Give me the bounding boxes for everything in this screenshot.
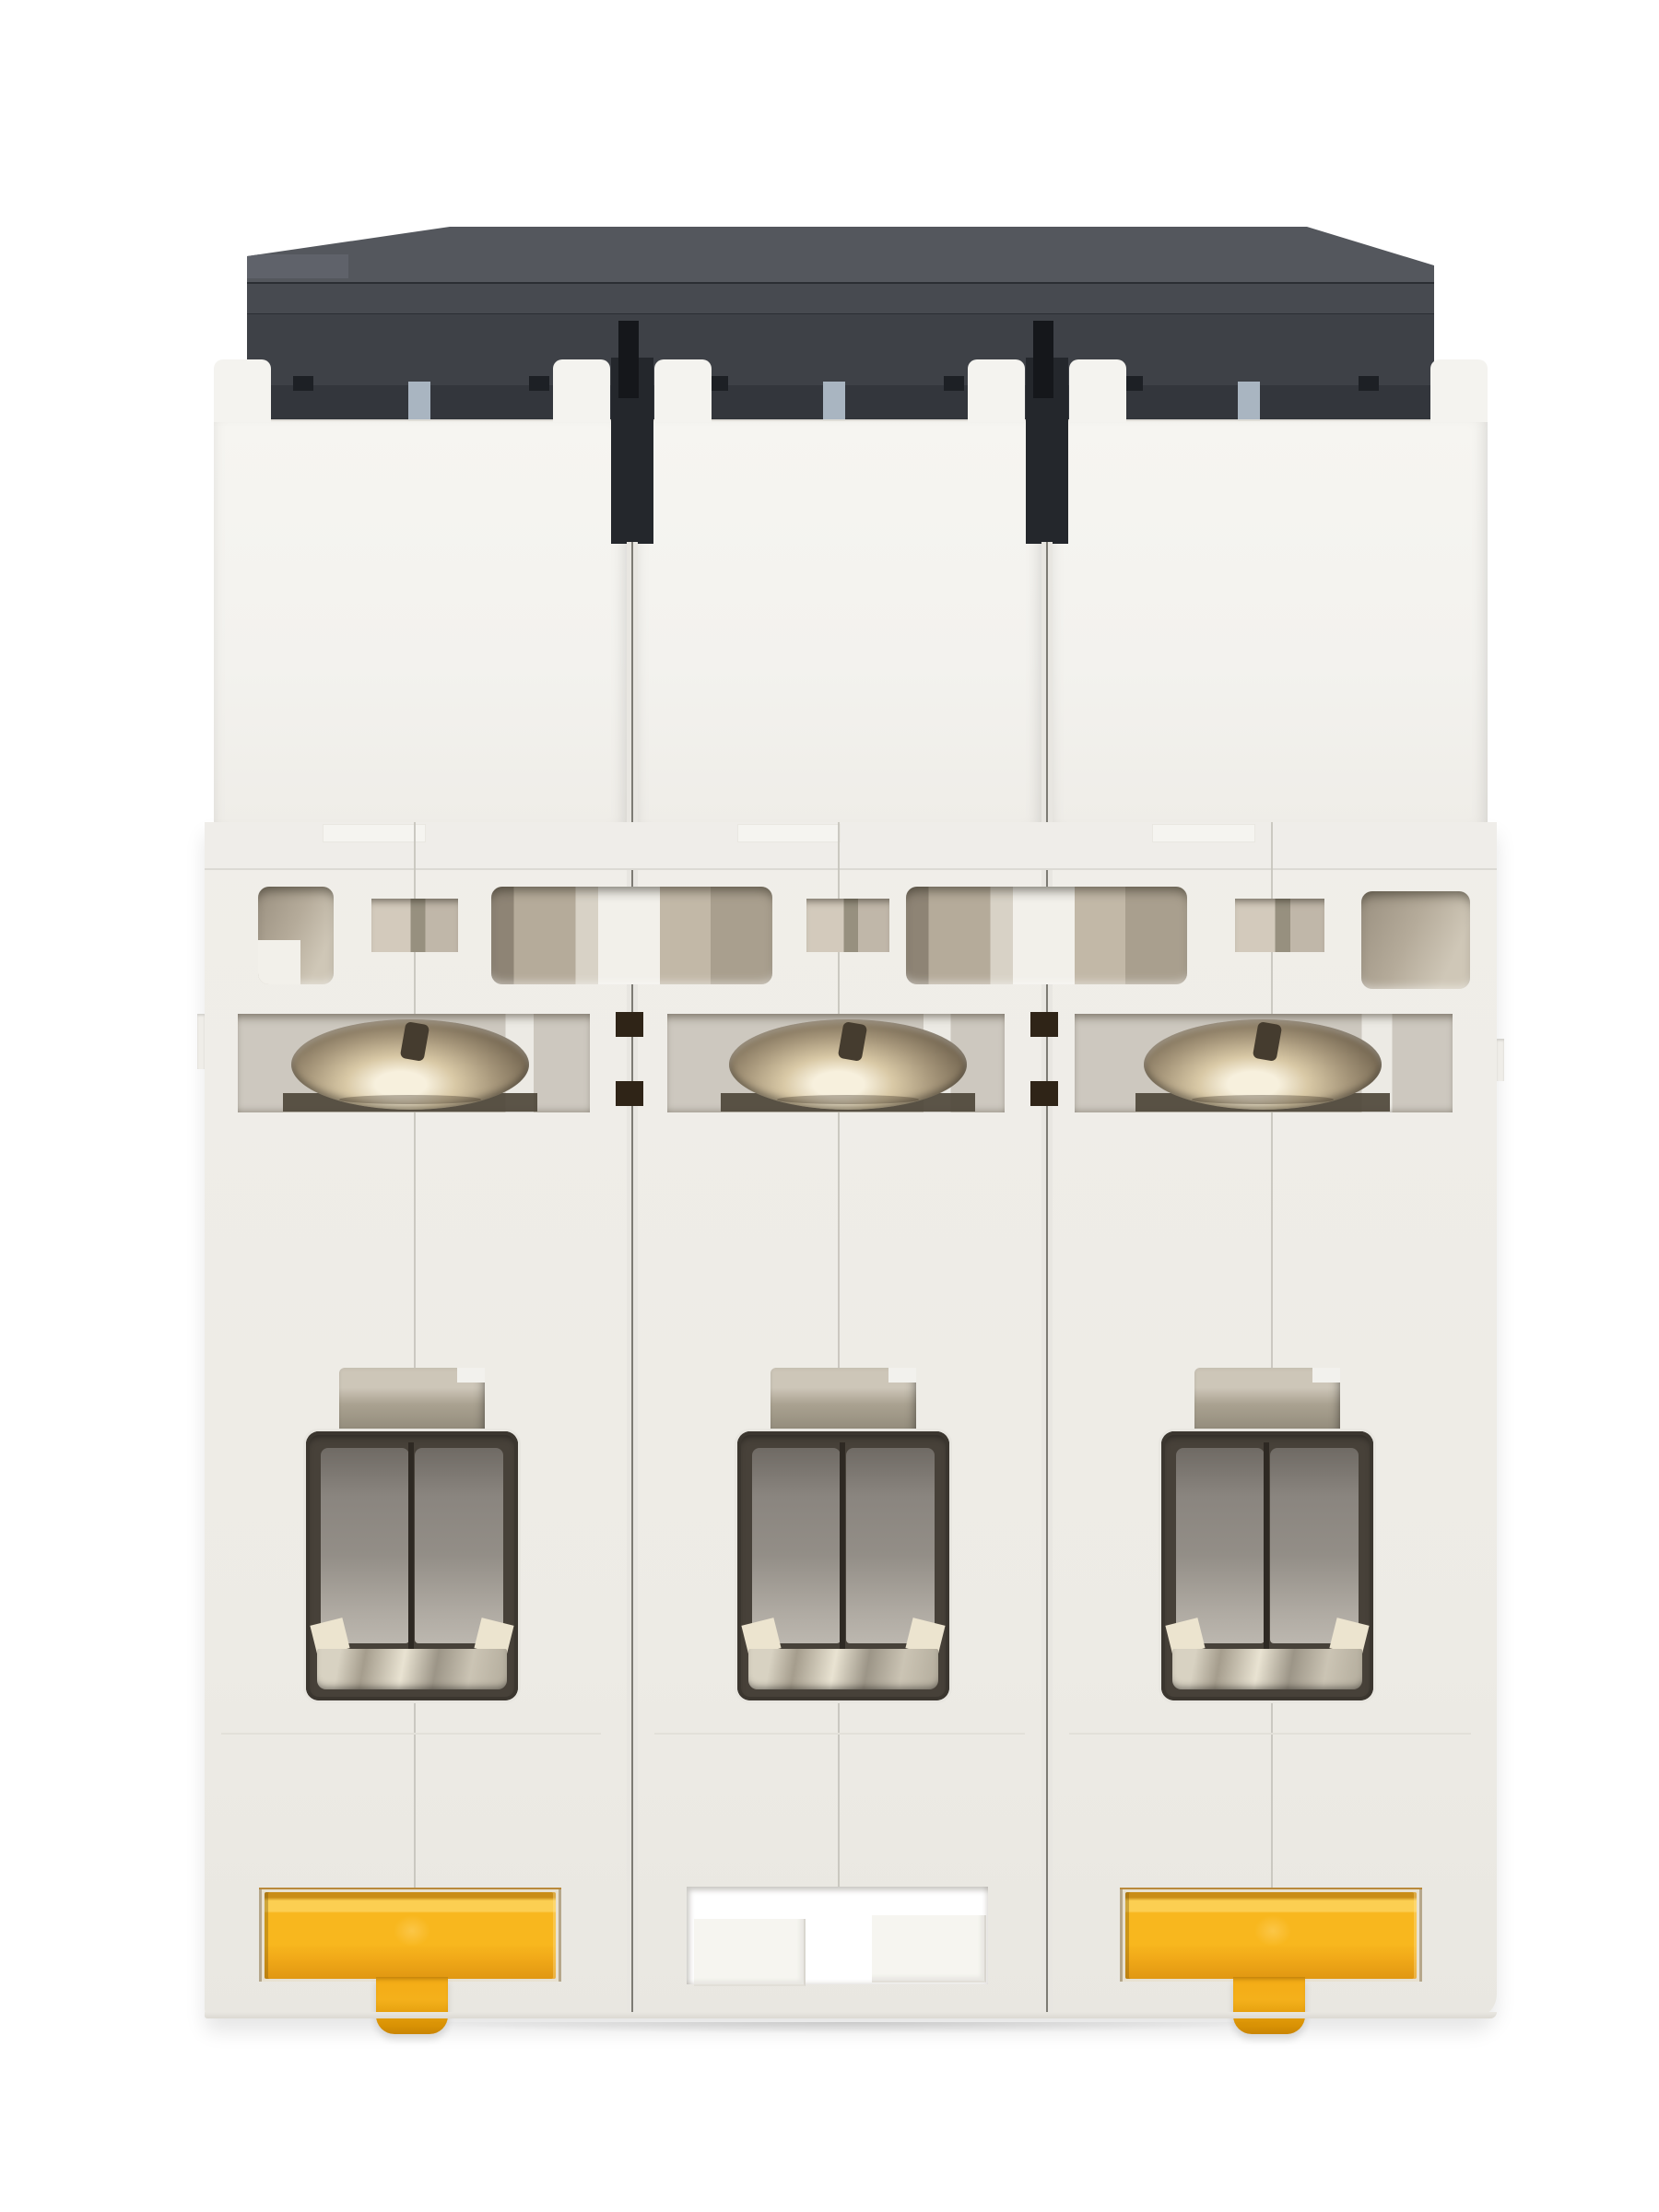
vent-opening-left-edge bbox=[258, 887, 334, 984]
top-cover-left-step-highlight bbox=[247, 254, 348, 278]
pole-gap-latch-2 bbox=[1033, 321, 1053, 398]
din-clip-highlight bbox=[394, 1915, 430, 1947]
vent-opening-right-edge bbox=[1361, 891, 1470, 989]
square-port-3 bbox=[1235, 899, 1324, 952]
square-port-1 bbox=[371, 899, 458, 952]
terminal-panel bbox=[1270, 1448, 1359, 1643]
vent-opening-straddle-1 bbox=[491, 887, 772, 984]
terminal-opening-3 bbox=[1161, 1431, 1373, 1700]
rail-notch-step-right bbox=[872, 1915, 986, 1983]
module-1-upper-shell bbox=[214, 419, 627, 824]
ledge-tab bbox=[323, 824, 426, 842]
cap-notch-icon bbox=[293, 376, 313, 391]
terminal-divider bbox=[1264, 1442, 1269, 1651]
module-3-left-shoulder bbox=[1069, 359, 1126, 422]
module-1-seam bbox=[414, 822, 416, 1892]
screw-ring bbox=[339, 1095, 482, 1104]
module-3-seam bbox=[1271, 822, 1273, 1892]
terminal-clamp-tab-1 bbox=[339, 1368, 485, 1434]
top-cover-top-face bbox=[247, 227, 1434, 282]
clamp-tab-step bbox=[457, 1368, 485, 1382]
top-cover-upper-band bbox=[247, 282, 1434, 315]
terminal-divider bbox=[840, 1442, 845, 1651]
terminal-clamp-tab-2 bbox=[771, 1368, 916, 1434]
left-edge-step bbox=[197, 1014, 205, 1069]
module-2-left-shoulder bbox=[654, 359, 712, 422]
screw-slot-icon bbox=[838, 1021, 868, 1062]
rail-spacer-tab-2 bbox=[823, 382, 845, 422]
clamp-tab-step bbox=[888, 1368, 916, 1382]
housing-bottom-edge bbox=[205, 2012, 1497, 2018]
terminal-clamp-plate bbox=[748, 1649, 938, 1689]
cast-shadow bbox=[230, 2022, 1465, 2039]
cap-notch-icon bbox=[1359, 376, 1379, 391]
separator-port bbox=[616, 1012, 643, 1037]
separator-port bbox=[1030, 1012, 1058, 1037]
terminal-clamp-plate bbox=[1172, 1649, 1362, 1689]
terminal-panel bbox=[846, 1448, 935, 1643]
terminal-opening-2 bbox=[737, 1431, 949, 1700]
lower-groove bbox=[1069, 1733, 1471, 1735]
terminal-clamp-tab-3 bbox=[1194, 1368, 1340, 1434]
ledge-tab bbox=[1152, 824, 1255, 842]
right-edge-step bbox=[1497, 1039, 1504, 1081]
terminal-panel bbox=[415, 1448, 503, 1643]
module-1-right-shoulder bbox=[553, 359, 610, 422]
terminal-panel bbox=[1176, 1448, 1265, 1643]
vent-inner-wall bbox=[258, 940, 300, 984]
rail-notch-pole-2 bbox=[687, 1887, 988, 1984]
lower-groove bbox=[221, 1733, 601, 1735]
pole-separator-1 bbox=[627, 542, 638, 2018]
ledge-tab bbox=[737, 824, 841, 842]
module-2-right-shoulder bbox=[968, 359, 1025, 422]
module-2-upper-shell bbox=[638, 419, 1041, 824]
terminal-panel bbox=[321, 1448, 409, 1643]
product-photo-circuit-breaker bbox=[0, 0, 1659, 2212]
separator-port bbox=[1030, 1081, 1058, 1106]
din-clip-highlight bbox=[1254, 1915, 1291, 1947]
pole-gap-latch-1 bbox=[618, 321, 639, 398]
module-2-seam bbox=[838, 822, 840, 1887]
screw-ring bbox=[777, 1095, 920, 1104]
module-1-left-shoulder bbox=[214, 359, 271, 422]
vent-opening-straddle-2 bbox=[906, 887, 1187, 984]
terminal-opening-1 bbox=[306, 1431, 518, 1700]
top-cover-mid-band bbox=[247, 313, 1434, 386]
screw-slot-icon bbox=[400, 1021, 430, 1062]
pole-separator-2 bbox=[1041, 542, 1053, 2018]
screw-slot-icon bbox=[1253, 1021, 1283, 1062]
module-3-upper-shell bbox=[1053, 419, 1488, 824]
cap-notch-icon bbox=[529, 376, 549, 391]
clamp-tab-step bbox=[1312, 1368, 1340, 1382]
separator-port bbox=[616, 1081, 643, 1106]
terminal-panel bbox=[752, 1448, 841, 1643]
rail-notch-step-left bbox=[694, 1919, 806, 1986]
terminal-divider bbox=[408, 1442, 414, 1651]
screw-ring bbox=[1192, 1095, 1335, 1104]
terminal-clamp-plate bbox=[317, 1649, 507, 1689]
rail-spacer-tab-3 bbox=[1238, 382, 1260, 422]
cap-notch-icon bbox=[944, 376, 964, 391]
terminal-screw-1 bbox=[291, 1019, 529, 1110]
terminal-screw-3 bbox=[1144, 1019, 1382, 1110]
module-3-right-shoulder bbox=[1430, 359, 1488, 422]
terminal-screw-2 bbox=[729, 1019, 967, 1110]
rail-spacer-tab-1 bbox=[408, 382, 430, 422]
square-port-2 bbox=[806, 899, 889, 952]
lower-groove bbox=[654, 1733, 1025, 1735]
